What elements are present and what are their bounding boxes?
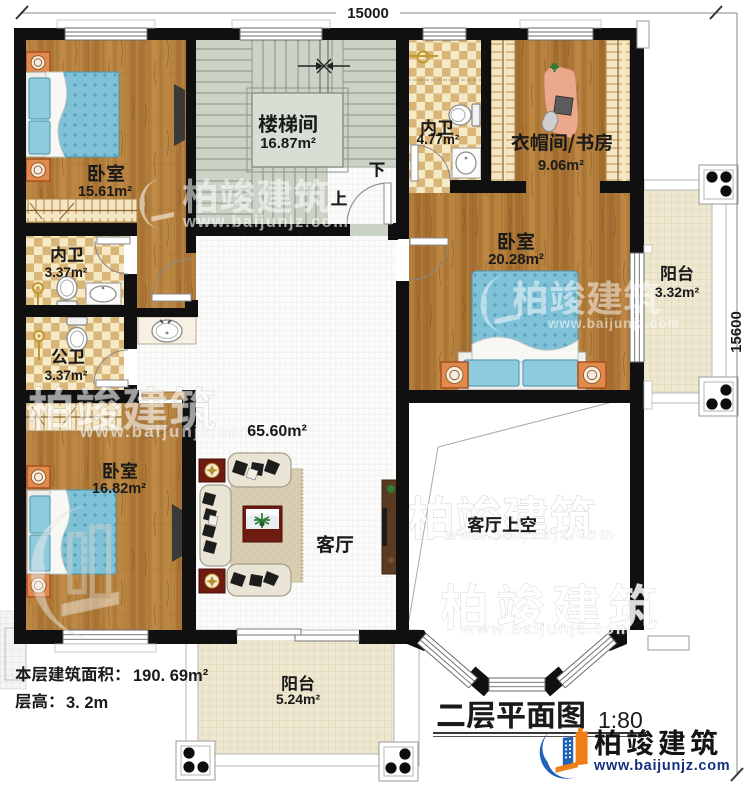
svg-text:3.32m²: 3.32m² <box>655 284 700 300</box>
svg-text:3. 2m: 3. 2m <box>66 694 108 712</box>
svg-text:15.61m²: 15.61m² <box>78 184 132 200</box>
svg-text:16.82m²: 16.82m² <box>92 481 146 497</box>
svg-text:3.37m²: 3.37m² <box>45 265 88 280</box>
svg-text:15600: 15600 <box>728 311 745 353</box>
svg-text:5.24m²: 5.24m² <box>276 691 321 707</box>
svg-text:15000: 15000 <box>347 5 389 22</box>
svg-text:www.baijunjz.com: www.baijunjz.com <box>79 422 259 441</box>
svg-text:3.37m²: 3.37m² <box>45 368 88 383</box>
svg-text:65.60m²: 65.60m² <box>247 423 307 440</box>
svg-text:www.baijunjz.com: www.baijunjz.com <box>547 316 681 331</box>
svg-text:www.baijunjz.com: www.baijunjz.com <box>593 758 730 774</box>
svg-text:20.28m²: 20.28m² <box>488 251 544 268</box>
svg-text:1:80: 1:80 <box>598 707 643 733</box>
svg-text:190. 69m²: 190. 69m² <box>133 667 209 685</box>
svg-text:4.77m²: 4.77m² <box>417 132 460 147</box>
svg-text:9.06m²: 9.06m² <box>538 158 584 174</box>
svg-text:www.baijunjz.com: www.baijunjz.com <box>444 526 615 543</box>
svg-text:16.87m²: 16.87m² <box>260 135 316 152</box>
svg-text:www.baijunjz.com: www.baijunjz.com <box>182 213 349 231</box>
svg-text:www.baijunjz.com: www.baijunjz.com <box>461 621 632 638</box>
